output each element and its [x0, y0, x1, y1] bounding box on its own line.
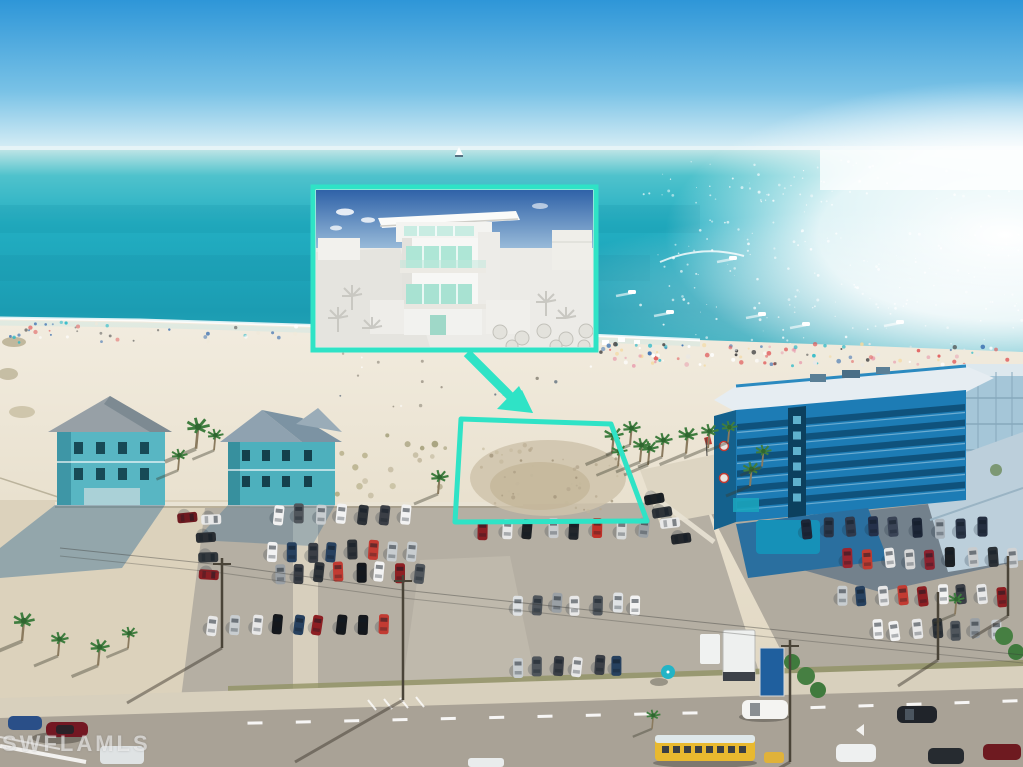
red-car [983, 744, 1021, 760]
dark-suv [897, 706, 937, 723]
rendering-inset [313, 187, 596, 352]
white-van-parked [700, 634, 720, 664]
blue-sign [760, 648, 784, 696]
inset-content [316, 190, 593, 352]
yellow-car [764, 752, 784, 763]
hotel-logo-badge [720, 474, 729, 483]
blue-car [8, 716, 42, 730]
school-bus [653, 735, 757, 767]
scene-svg [0, 0, 1023, 767]
aerial-photo: SWFLAMLS [0, 0, 1023, 767]
vacant-lot [470, 440, 626, 516]
dark-car [928, 748, 964, 764]
white-suv [739, 700, 789, 722]
mls-watermark: SWFLAMLS [2, 731, 151, 757]
white-car-partial [468, 758, 504, 767]
white-van [836, 744, 876, 762]
